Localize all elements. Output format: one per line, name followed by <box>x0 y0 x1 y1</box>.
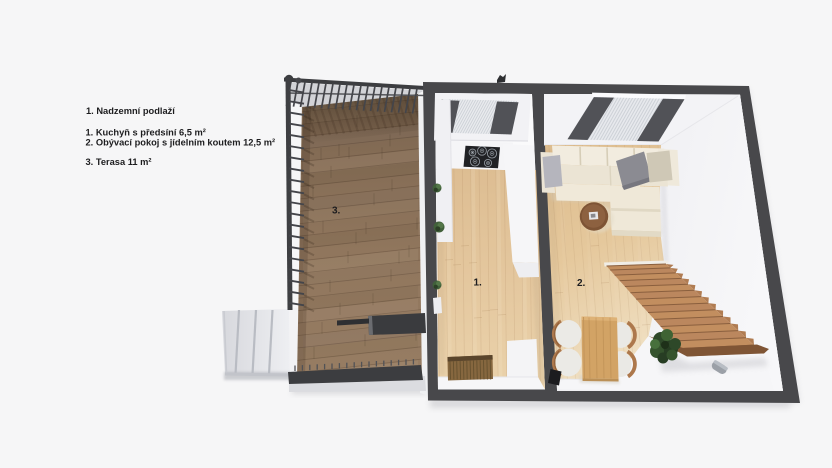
svg-text:2. Obývací pokoj s jídelním ko: 2. Obývací pokoj s jídelním koutem 12,5 … <box>86 137 276 147</box>
svg-text:2.: 2. <box>577 278 586 289</box>
svg-text:3.: 3. <box>332 206 341 217</box>
svg-text:1. Nadzemní podlaží: 1. Nadzemní podlaží <box>86 106 175 116</box>
svg-text:1. Kuchyň s předsíní 6,5 m²: 1. Kuchyň s předsíní 6,5 m² <box>86 127 206 137</box>
svg-text:1.: 1. <box>474 278 483 289</box>
svg-text:3. Terasa 11 m²: 3. Terasa 11 m² <box>86 157 152 167</box>
